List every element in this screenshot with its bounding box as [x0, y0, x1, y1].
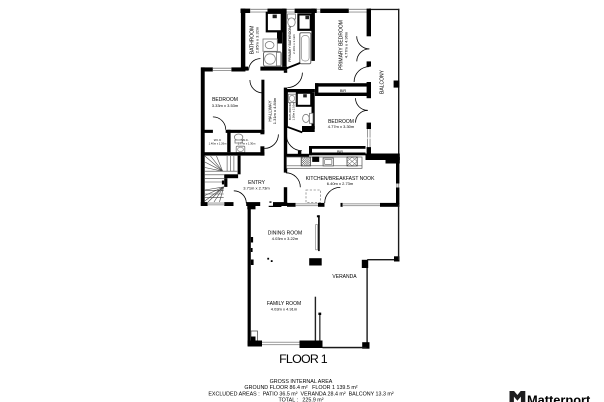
svg-text:FLOOR 1: FLOOR 1 — [279, 352, 328, 366]
svg-text:4.77m x 4.96m: 4.77m x 4.96m — [343, 31, 348, 58]
svg-text:TOTAL : 225.9 m²: TOTAL : 225.9 m² — [278, 398, 323, 402]
svg-text:4.03m x 4.91m: 4.03m x 4.91m — [271, 306, 298, 311]
svg-text:EXCLUDED AREAS : PATIO 36.5 m: EXCLUDED AREAS : PATIO 36.5 m² VERANDA 2… — [208, 391, 394, 397]
svg-text:1.31m x 4.84m: 1.31m x 4.84m — [272, 97, 277, 124]
svg-text:6.40m x 2.73m: 6.40m x 2.73m — [327, 181, 354, 186]
svg-text:1.40m x 1.26m: 1.40m x 1.26m — [209, 141, 228, 145]
svg-text:GROUND FLOOR 86.4 m² FLOOR 1: GROUND FLOOR 86.4 m² FLOOR 1 139.5 m² — [244, 385, 357, 391]
svg-text:3.33m x 3.53m: 3.33m x 3.53m — [212, 103, 239, 108]
svg-text:Matterport: Matterport — [527, 393, 591, 402]
svg-text:BIR: BIR — [340, 89, 347, 93]
svg-text:1.77m x 1.30m: 1.77m x 1.30m — [238, 142, 257, 146]
svg-text:BIR: BIR — [337, 150, 343, 154]
svg-text:2.10m x 3.12m: 2.10m x 3.12m — [292, 34, 296, 54]
svg-text:W.I.C: W.I.C — [214, 138, 222, 142]
svg-text:3.71m x 2.73m: 3.71m x 2.73m — [243, 185, 270, 190]
svg-text:BALCONY: BALCONY — [379, 69, 385, 94]
svg-text:W.C.: W.C. — [242, 138, 249, 142]
svg-text:1.50m x 2.10m: 1.50m x 2.10m — [291, 102, 295, 121]
svg-text:4.77m x 3.30m: 4.77m x 3.30m — [328, 124, 355, 129]
svg-text:4.03m x 3.22m: 4.03m x 3.22m — [272, 236, 299, 241]
svg-text:VERANDA: VERANDA — [332, 274, 357, 280]
svg-text:GROSS INTERNAL AREA: GROSS INTERNAL AREA — [270, 379, 333, 385]
svg-text:2.85m x 3.32m: 2.85m x 3.32m — [254, 26, 259, 53]
